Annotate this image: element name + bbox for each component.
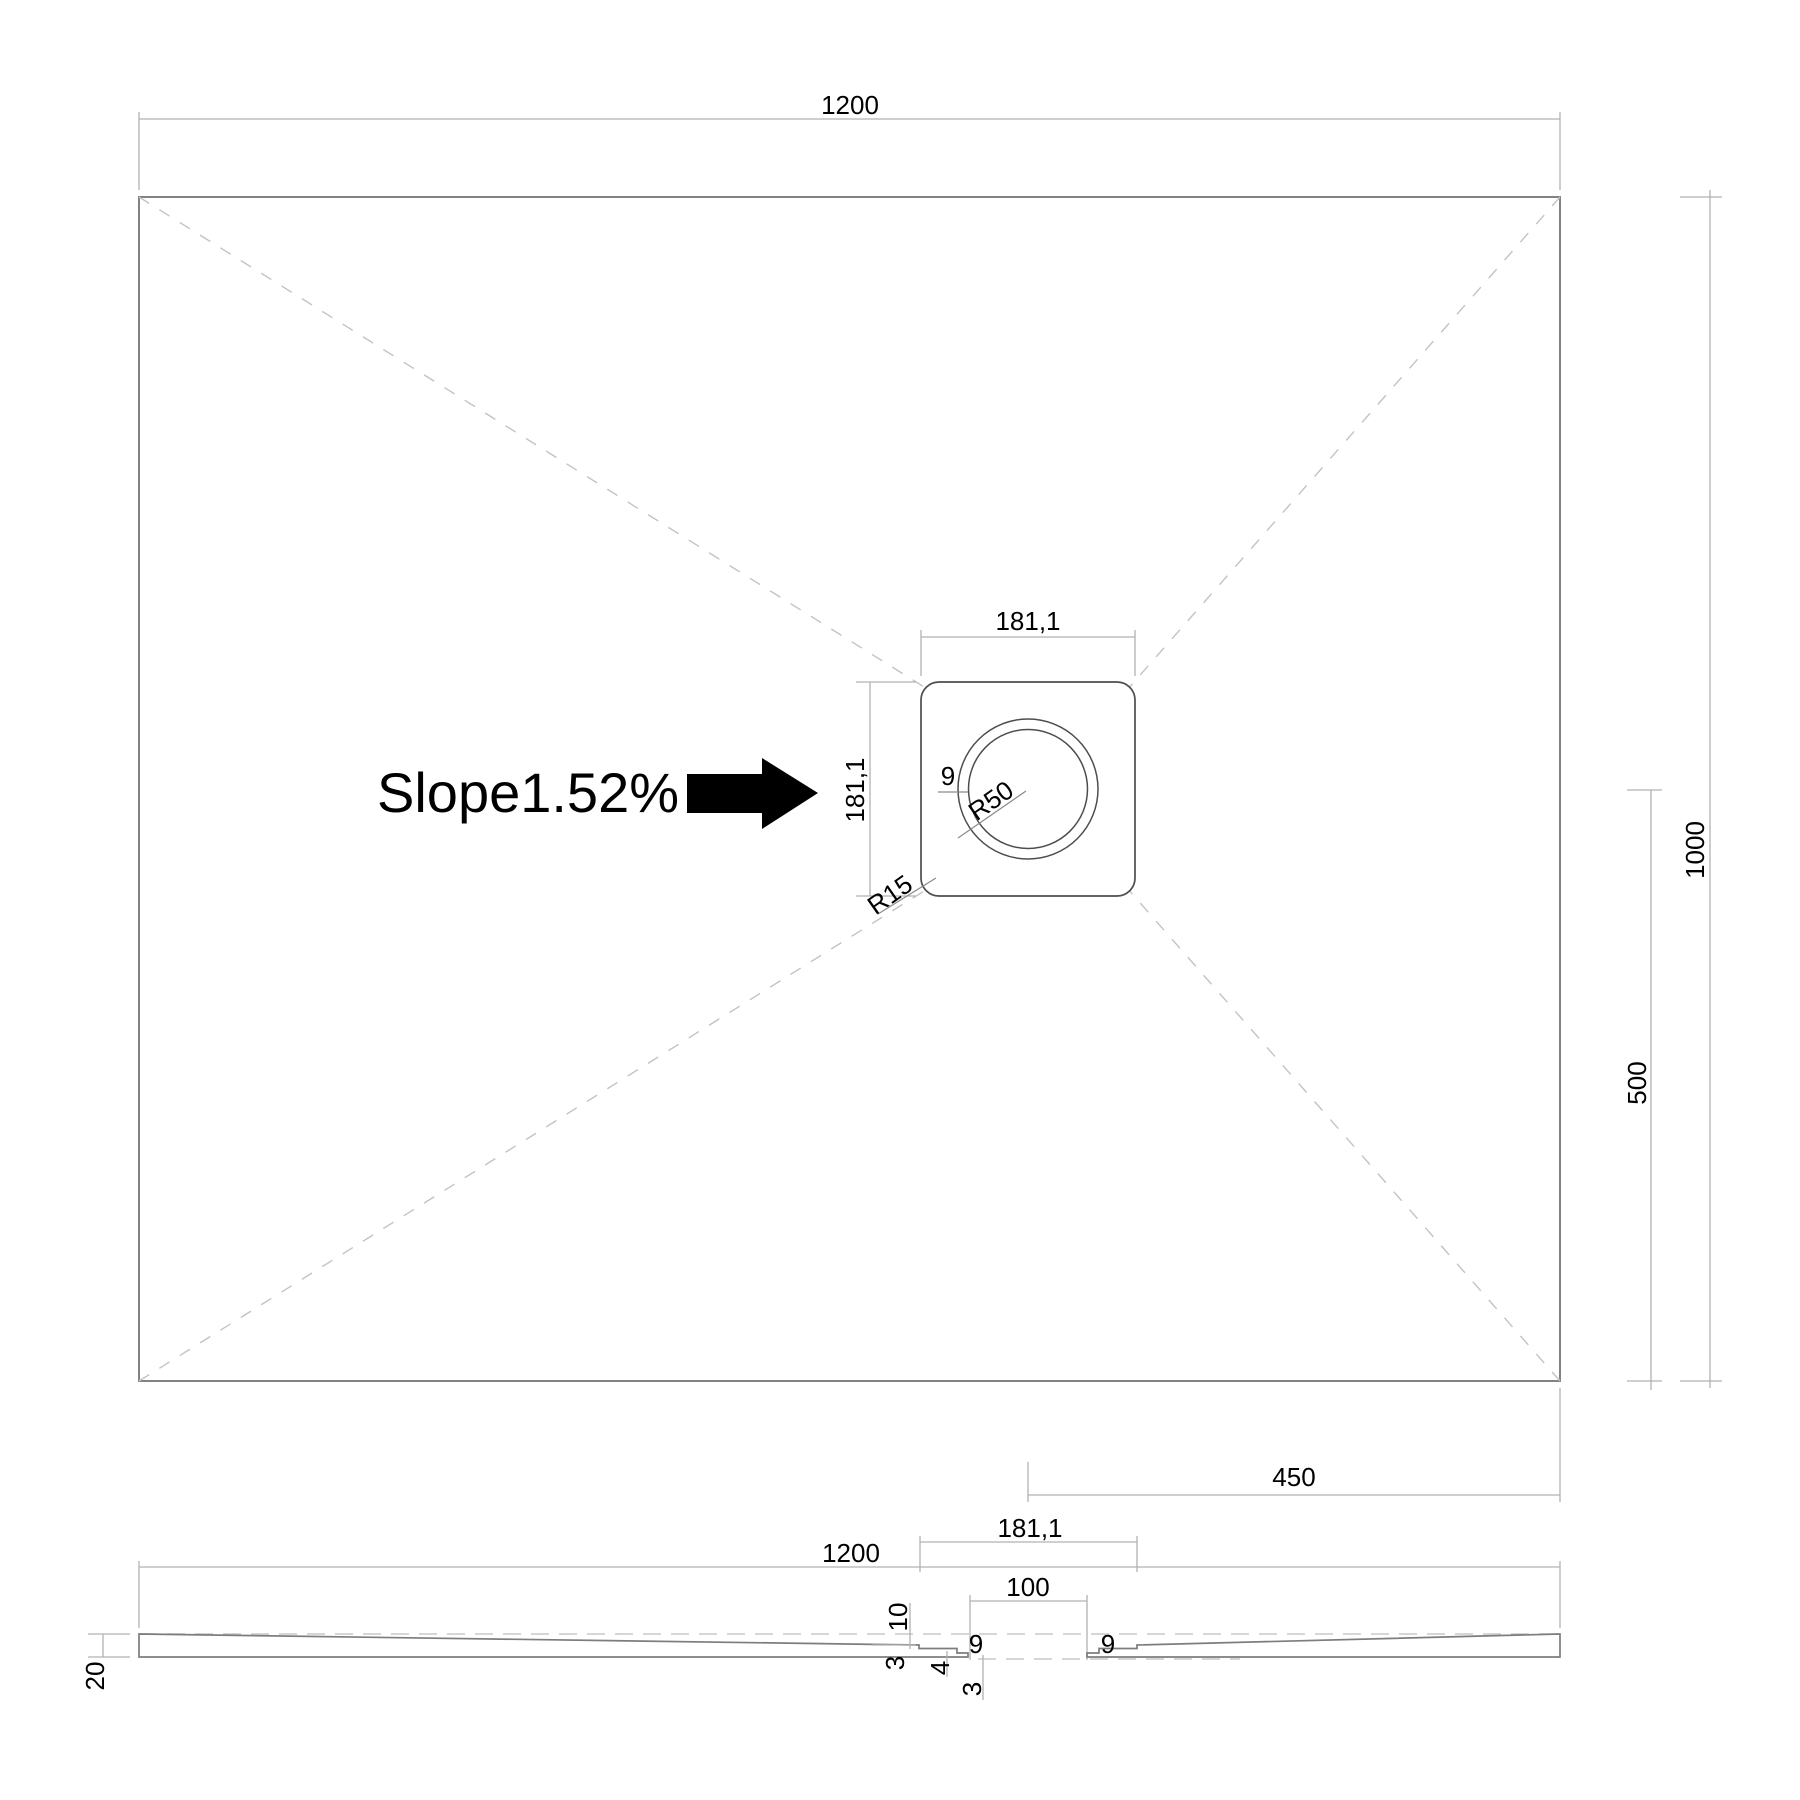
dim-mid-step: 4 (925, 1651, 955, 1677)
slope-diagonal-bottom-left (139, 888, 929, 1381)
dim-right-height: 1000 (1680, 190, 1722, 1388)
dim-label-drain-height: 181,1 (840, 757, 870, 822)
dim-section-flange: 181,1 (920, 1513, 1137, 1572)
dim-label-lip: 3 (957, 1682, 987, 1696)
dim-right-half-height: 500 (1622, 790, 1662, 1390)
section-profile-right (1087, 1634, 1560, 1657)
dim-depth: 10 (872, 1603, 916, 1649)
dim-hole-width: 100 (970, 1572, 1087, 1660)
dim-label-thickness: 20 (80, 1662, 110, 1691)
dim-label-mid-step: 4 (925, 1661, 955, 1675)
dim-label-height: 1000 (1680, 821, 1710, 879)
technical-drawing-page: 1200 1000 500 450 (0, 0, 1800, 1800)
dim-label-depth: 10 (883, 1603, 913, 1632)
top-view: 1200 1000 500 450 (139, 90, 1722, 1502)
dim-label-section-width: 1200 (822, 1538, 880, 1568)
dim-label-edge-step: 3 (880, 1656, 910, 1670)
dim-drain-height: 181,1 (840, 682, 916, 896)
section-profile-left (139, 1634, 968, 1657)
slope-label: Slope1.52% (377, 761, 679, 824)
dim-lip: 3 (957, 1655, 987, 1700)
dim-edge-step: 3 (880, 1656, 910, 1670)
dim-label-drain-width: 181,1 (995, 606, 1060, 636)
dim-label-hole-width: 100 (1006, 1572, 1049, 1602)
slope-diagonal-top-right (1127, 197, 1560, 690)
dim-drain-width: 181,1 (921, 606, 1135, 676)
dim-thickness: 20 (80, 1634, 130, 1690)
slope-annotation: Slope1.52% (377, 758, 818, 829)
section-view: 181,1 1200 100 10 3 (80, 1513, 1560, 1700)
slope-diagonal-bottom-right (1127, 888, 1560, 1381)
slope-diagonal-top-left (139, 197, 929, 690)
dim-drain-offset: 450 (1028, 1388, 1560, 1502)
dim-top-width: 1200 (139, 90, 1560, 190)
dim-label-right-ring: 9 (1101, 1629, 1115, 1659)
dim-label-left-ring: 9 (969, 1629, 983, 1659)
dim-label-half-height: 500 (1622, 1061, 1652, 1104)
shower-tray-drawing: 1200 1000 500 450 (0, 0, 1800, 1800)
dim-section-width: 1200 (139, 1538, 1560, 1628)
slope-arrow-icon (687, 758, 818, 829)
dim-label-width: 1200 (821, 90, 879, 120)
dim-label-section-flange: 181,1 (997, 1513, 1062, 1543)
dim-label-ring-width: 9 (941, 761, 955, 791)
dim-label-drain-offset: 450 (1272, 1462, 1315, 1492)
